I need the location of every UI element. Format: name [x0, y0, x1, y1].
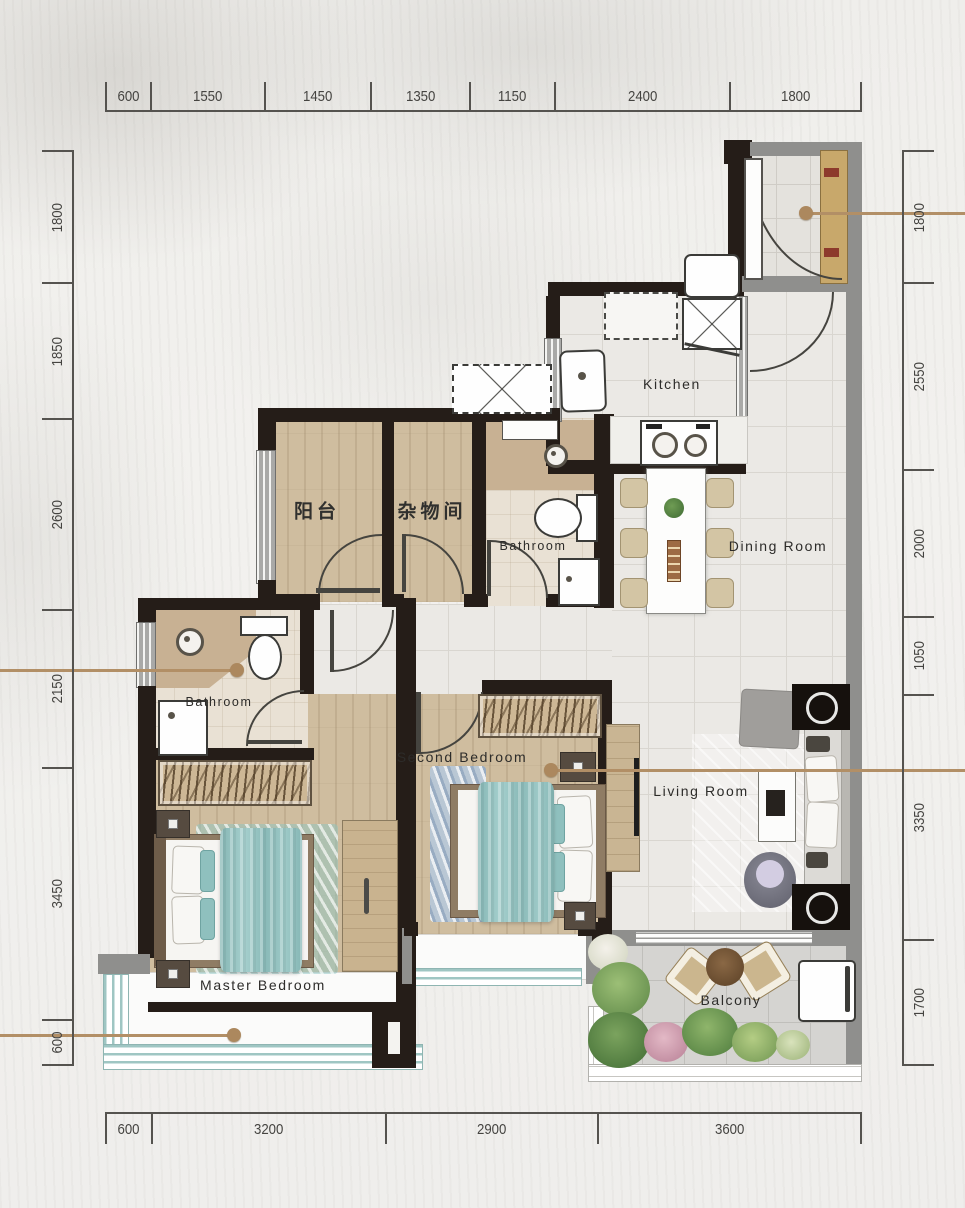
- living-pouf-top: [756, 860, 784, 888]
- label-terrace: 阳台: [294, 503, 340, 522]
- dimension-segment: 1700: [904, 939, 934, 1066]
- balcony-plant: [776, 1030, 810, 1060]
- dimension-segment: 3350: [904, 694, 934, 939]
- label-master-bedroom: Master Bedroom: [200, 978, 326, 992]
- bath-master-toilet-bowl: [248, 634, 282, 680]
- balcony-plant: [682, 1008, 738, 1056]
- bath-master-shower-dot: [168, 712, 175, 719]
- dimension-value: 1700: [912, 988, 927, 1017]
- kitchen-appliance-box: [684, 254, 740, 298]
- wardrobe-master-bedroom: [158, 760, 312, 806]
- dining-chair: [620, 478, 648, 508]
- bath-upper-shower-box: [558, 558, 600, 606]
- dimension-value: 1800: [50, 203, 65, 232]
- wall-secbed-bottom-a: [404, 922, 418, 936]
- label-kitchen: Kitchen: [643, 377, 701, 391]
- dimension-value: 600: [118, 89, 140, 104]
- dimension-strip-top: 600155014501350115024001800: [105, 82, 862, 112]
- bed-teal-pillow-master: [200, 850, 215, 892]
- bed-blanket-master: [220, 828, 302, 972]
- dimension-value: 1800: [781, 89, 810, 104]
- wall-cap-master-left: [98, 954, 150, 974]
- dimension-value: 3200: [254, 1122, 283, 1137]
- dimension-value: 2150: [50, 674, 65, 703]
- dimension-value: 3600: [715, 1122, 744, 1137]
- dimension-value: 2900: [477, 1122, 506, 1137]
- bay-window-glazing: [414, 968, 582, 986]
- second-bedroom-door-leaf: [416, 692, 421, 754]
- wall-divider-terrace-storage: [382, 416, 394, 602]
- label-balcony: Balcony: [700, 993, 761, 1007]
- dining-chair: [620, 528, 648, 558]
- master-door-leaf: [330, 610, 334, 672]
- dimension-segment: 600: [42, 1019, 72, 1066]
- bed-blanket-second: [478, 782, 554, 922]
- bathroom-master-door-leaf: [248, 740, 302, 744]
- nightstand-master-top: [156, 810, 190, 838]
- dimension-value: 1050: [912, 641, 927, 670]
- sofa-cushion: [804, 755, 839, 803]
- leader-line-master-bath: [0, 669, 238, 672]
- dresser-handle: [364, 878, 369, 914]
- balcony-plant: [592, 962, 650, 1016]
- flue-box: [682, 298, 742, 350]
- window-living-balcony: [636, 932, 812, 944]
- sofa-cushion: [805, 801, 839, 849]
- dimension-value: 3450: [50, 879, 65, 908]
- balcony-plant: [588, 1012, 650, 1068]
- wall-exterior-right: [846, 142, 862, 1078]
- wall-master-top: [148, 598, 320, 610]
- dimension-segment: 1350: [370, 82, 469, 110]
- dimension-segment: 1550: [150, 82, 264, 110]
- stove-burner-left: [652, 432, 678, 458]
- dimension-segment: 2150: [42, 609, 72, 767]
- kitchen-counter-dashed: [604, 292, 678, 340]
- dimension-strip-left: 18001850260021503450600: [42, 150, 74, 1066]
- dimension-segment: 1150: [469, 82, 554, 110]
- nightstand-second-bottom: [564, 902, 596, 930]
- dresser-master: [342, 820, 398, 972]
- dimension-segment: 1800: [729, 82, 863, 110]
- post-bay-left: [402, 928, 412, 984]
- label-storage: 杂物间: [397, 503, 466, 522]
- dimension-value: 2600: [50, 500, 65, 529]
- bath-upper-shower-box-dot: [566, 576, 572, 582]
- leader-dot-entry: [799, 206, 813, 220]
- wall-divider-storage-bath: [472, 416, 486, 602]
- bath-master-sink-dot: [184, 636, 190, 642]
- floor-plan-canvas: 阳台 杂物间 Bathroom Kitchen Dining Room Bath…: [0, 0, 965, 1208]
- side-table-bottom-lamp: [806, 892, 838, 924]
- terrace-door-leaf: [316, 588, 380, 593]
- dimension-segment: 2600: [42, 418, 72, 608]
- balcony-plant: [732, 1022, 778, 1062]
- dining-plant: [664, 498, 684, 518]
- dimension-segment: 3600: [597, 1114, 862, 1144]
- dimension-value: 1550: [193, 89, 222, 104]
- dimension-value: 2400: [628, 89, 657, 104]
- leader-dot-master-balcony: [227, 1028, 241, 1042]
- bath-upper-toilet-bowl: [534, 498, 582, 538]
- entry-shoe-cabinet: [744, 158, 763, 280]
- bath-master-toilet-tank: [240, 616, 288, 636]
- dimension-segment: 2400: [554, 82, 729, 110]
- dimension-segment: 1800: [904, 150, 934, 282]
- dimension-segment: 1800: [42, 150, 72, 282]
- window-terrace-left: [256, 450, 276, 584]
- bed-teal-pillow-master: [200, 898, 215, 940]
- dimension-value: 3350: [912, 803, 927, 832]
- ac-platform-box: [452, 364, 552, 414]
- wall-mbath-left-upper: [138, 598, 156, 622]
- dimension-segment: 3450: [42, 767, 72, 1019]
- dimension-segment: 1450: [264, 82, 370, 110]
- wall-mbath-right: [300, 598, 314, 694]
- nightstand-second-top: [560, 752, 596, 782]
- stove-bar-left: [646, 424, 662, 429]
- sofa-pillow-dark: [806, 852, 828, 868]
- leader-line-master-balcony: [0, 1034, 234, 1037]
- dimension-segment: 2000: [904, 469, 934, 616]
- wall-terrace-left-upper: [258, 408, 276, 452]
- leader-dot-master-bath: [230, 663, 244, 677]
- stove-burner-right: [684, 434, 707, 457]
- dimension-strip-bottom: 600320029003600: [105, 1112, 862, 1144]
- label-bathroom-upper: Bathroom: [500, 540, 567, 553]
- dimension-segment: 2900: [385, 1114, 597, 1144]
- dimension-segment: 600: [105, 82, 150, 110]
- window-mbath-left: [136, 622, 156, 688]
- dimension-value: 1800: [912, 203, 927, 232]
- storage-door-leaf: [402, 534, 406, 592]
- dimension-value: 1850: [50, 337, 65, 366]
- balcony-outer-band-bottom: [588, 1064, 862, 1082]
- dimension-strip-right: 180025502000105033501700: [902, 150, 934, 1066]
- dimension-value: 600: [118, 1122, 140, 1137]
- kitchen-faucet: [578, 372, 586, 380]
- washing-machine-handle: [845, 966, 850, 1012]
- wall-secbed-top: [482, 680, 612, 694]
- sofa-pillow-dark: [806, 736, 830, 752]
- dimension-value: 600: [50, 1031, 65, 1053]
- label-bathroom-master: Bathroom: [186, 696, 253, 709]
- dimension-segment: 1850: [42, 282, 72, 418]
- label-living-room: Living Room: [653, 784, 748, 798]
- label-dining-room: Dining Room: [729, 539, 828, 553]
- kitchen-sink: [559, 349, 607, 413]
- balcony-table: [706, 948, 744, 986]
- dining-chair: [620, 578, 648, 608]
- dining-chair: [706, 478, 734, 508]
- leader-dot-second-bedroom: [544, 763, 558, 777]
- stove-bar-right: [696, 424, 710, 429]
- side-table-top-lamp: [806, 692, 838, 724]
- post-slit-window: [388, 1022, 400, 1054]
- label-second-bedroom: Second Bedroom: [397, 750, 528, 764]
- wardrobe-second-bedroom: [478, 694, 602, 738]
- dimension-value: 1350: [406, 89, 435, 104]
- bath-master-sink: [176, 628, 204, 656]
- dimension-value: 2550: [912, 362, 927, 391]
- bath-upper-shower-head: [544, 444, 568, 468]
- dimension-segment: 3200: [151, 1114, 385, 1144]
- bed-headboard-master: [154, 834, 166, 966]
- nightstand-master-bottom: [156, 960, 190, 988]
- dimension-value: 2000: [912, 529, 927, 558]
- coffee-table-decor: [766, 790, 785, 816]
- dining-runner: [667, 540, 681, 582]
- dimension-segment: 600: [105, 1114, 151, 1144]
- dimension-value: 1150: [498, 89, 526, 104]
- bath-upper-cabinet: [502, 420, 558, 440]
- bathroom-upper-door-leaf: [487, 540, 491, 596]
- dining-chair: [706, 578, 734, 608]
- dimension-value: 1450: [303, 89, 332, 104]
- leader-line-entry: [806, 212, 965, 215]
- dimension-segment: 2550: [904, 282, 934, 469]
- wall-kitchen-left-upper: [546, 296, 560, 338]
- dimension-segment: 1050: [904, 616, 934, 694]
- bath-upper-shower-dot: [551, 451, 556, 456]
